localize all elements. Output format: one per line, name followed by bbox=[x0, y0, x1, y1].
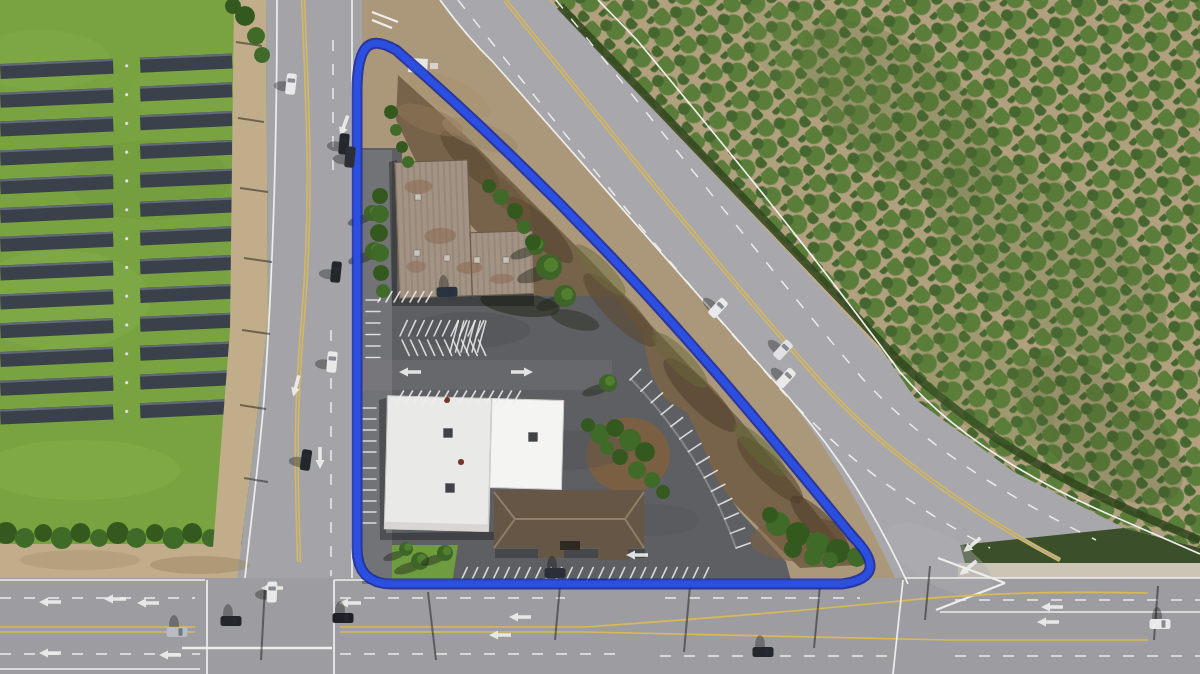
entry-recess bbox=[560, 541, 580, 550]
center-drive-aisle bbox=[362, 360, 612, 390]
aerial-photo-stage bbox=[0, 0, 1200, 674]
aerial-photo bbox=[0, 0, 1200, 674]
small-container bbox=[430, 63, 438, 69]
sidewalk bbox=[958, 563, 1200, 578]
